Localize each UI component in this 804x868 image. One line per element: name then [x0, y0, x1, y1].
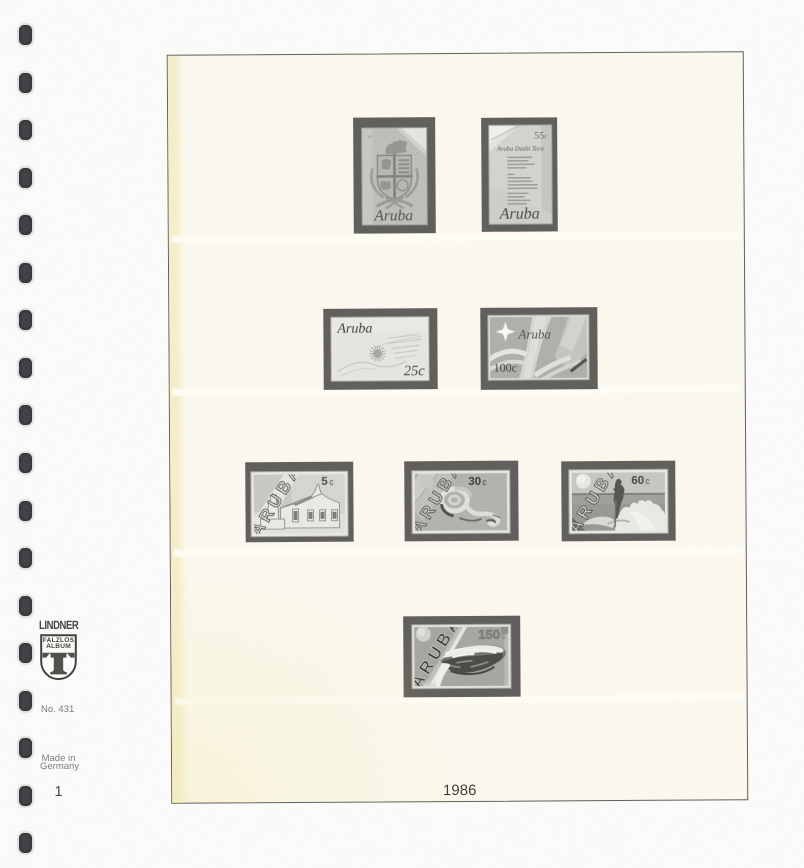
svg-text:c: c — [501, 631, 506, 641]
svg-text:55: 55 — [534, 130, 544, 141]
svg-text:Aruba: Aruba — [336, 322, 372, 337]
svg-text:c: c — [544, 132, 547, 140]
svg-text:Aruba Dushi Tera: Aruba Dushi Tera — [496, 145, 544, 152]
svg-text:5: 5 — [321, 476, 328, 488]
svg-text:Aruba: Aruba — [517, 326, 551, 341]
svg-text:100c: 100c — [494, 361, 517, 375]
svg-text:+: + — [367, 133, 372, 142]
svg-text:Aruba: Aruba — [499, 205, 540, 222]
svg-text:Aruba: Aruba — [373, 207, 413, 224]
svg-text:25c: 25c — [404, 363, 426, 379]
svg-text:30: 30 — [468, 476, 481, 488]
svg-text:60: 60 — [631, 475, 644, 487]
